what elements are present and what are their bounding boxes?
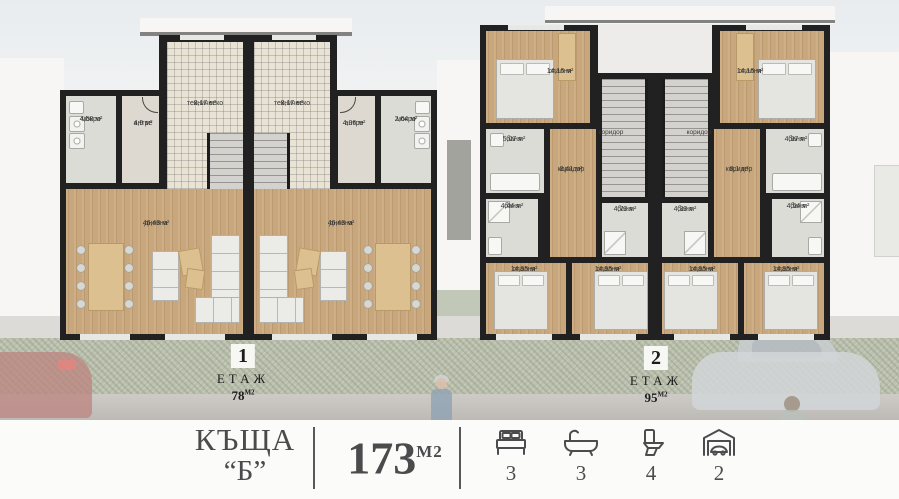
toilets-count: 4 xyxy=(622,461,680,486)
stair-rail xyxy=(207,133,210,189)
stat-bedrooms: 3 xyxy=(482,428,540,486)
bed xyxy=(664,271,718,330)
house-name: КЪЩА xyxy=(172,423,318,456)
house-title: КЪЩА “Б” xyxy=(172,423,318,487)
divider xyxy=(459,427,461,489)
stair-rail xyxy=(645,79,648,197)
pillow xyxy=(792,275,814,286)
chairs xyxy=(362,241,374,311)
stairs-b xyxy=(662,79,708,197)
loveseat xyxy=(152,251,179,301)
bed xyxy=(764,271,818,330)
garage-icon xyxy=(690,428,748,458)
washing-machine xyxy=(69,133,85,149)
bed xyxy=(496,59,554,119)
coffee-table xyxy=(294,268,315,290)
roof-gap xyxy=(598,25,712,73)
floorplan-sheet: мокро4,58 м² антре4,9 м² техническо8,17 … xyxy=(0,0,899,499)
pillow xyxy=(500,63,524,75)
stat-baths: 3 xyxy=(552,428,610,486)
bed xyxy=(494,271,548,330)
shower-fixture xyxy=(604,231,626,255)
window xyxy=(758,334,814,340)
pillow xyxy=(498,275,520,286)
window xyxy=(165,334,225,340)
window xyxy=(580,334,636,340)
floor-number: 1 xyxy=(231,344,255,368)
bathtub-fixture xyxy=(490,173,540,191)
window xyxy=(367,334,417,340)
window xyxy=(80,334,130,340)
baths-count: 3 xyxy=(552,461,610,486)
window xyxy=(746,25,802,30)
toilet-icon xyxy=(622,428,680,458)
floor-area: 78М2 xyxy=(217,388,269,404)
pillow xyxy=(788,63,812,75)
window xyxy=(272,334,332,340)
chairs xyxy=(410,241,422,311)
house-letter: “Б” xyxy=(172,456,318,487)
stat-toilets: 4 xyxy=(622,428,680,486)
toilet-fixture xyxy=(488,237,502,255)
sofa xyxy=(259,297,304,323)
pillow xyxy=(668,275,690,286)
sofa xyxy=(259,235,288,301)
pillow xyxy=(598,275,620,286)
sofa xyxy=(195,297,240,323)
pillow xyxy=(622,275,644,286)
window xyxy=(272,35,316,40)
floor-number: 2 xyxy=(644,346,668,370)
pillow xyxy=(768,275,790,286)
divider xyxy=(313,427,315,489)
bed xyxy=(594,271,648,330)
bed xyxy=(758,59,816,119)
stairs-b xyxy=(254,133,290,189)
window xyxy=(508,25,564,30)
dining-table xyxy=(375,243,411,311)
total-area: 173М2 xyxy=(330,426,460,484)
sink-fixture xyxy=(415,101,430,114)
pillow xyxy=(522,275,544,286)
toilet-fixture xyxy=(808,237,822,255)
bathtub-fixture xyxy=(772,173,822,191)
loveseat xyxy=(320,251,347,301)
footer-bar: КЪЩА “Б” 173М2 3 xyxy=(0,420,899,499)
bedrooms-count: 3 xyxy=(482,461,540,486)
sink-fixture xyxy=(808,133,822,147)
room-corridor-a xyxy=(550,129,596,257)
sink-fixture xyxy=(69,101,84,114)
coffee-table xyxy=(185,268,206,290)
bed-icon xyxy=(482,428,540,458)
floor-label: ЕТАЖ xyxy=(630,373,682,389)
stat-garage: 2 xyxy=(690,428,748,486)
room-corridor-b xyxy=(714,129,760,257)
floor1-badge: 1 ЕТАЖ 78М2 xyxy=(217,344,269,404)
floor1-plan: мокро4,58 м² антре4,9 м² техническо8,17 … xyxy=(60,35,437,340)
garage-count: 2 xyxy=(690,461,748,486)
floor-area: 95М2 xyxy=(630,390,682,406)
floor2-badge: 2 ЕТАЖ 95М2 xyxy=(630,346,682,406)
washing-machine xyxy=(414,133,430,149)
pillow xyxy=(762,63,786,75)
stairs-a xyxy=(602,79,648,197)
window xyxy=(674,334,730,340)
floor-label: ЕТАЖ xyxy=(217,371,269,387)
chairs xyxy=(123,241,135,311)
window xyxy=(496,334,552,340)
shower-fixture xyxy=(684,231,706,255)
stair-rail xyxy=(662,79,665,197)
stairs-a xyxy=(207,133,243,189)
bathtub-icon xyxy=(552,428,610,458)
window xyxy=(180,35,224,40)
sofa xyxy=(211,235,240,301)
floor2-plan: спалня14,16 м² баня5,07 м² коридор корид… xyxy=(480,25,830,340)
chairs xyxy=(75,241,87,311)
stair-rail xyxy=(287,133,290,189)
pillow xyxy=(692,275,714,286)
dining-table xyxy=(88,243,124,311)
